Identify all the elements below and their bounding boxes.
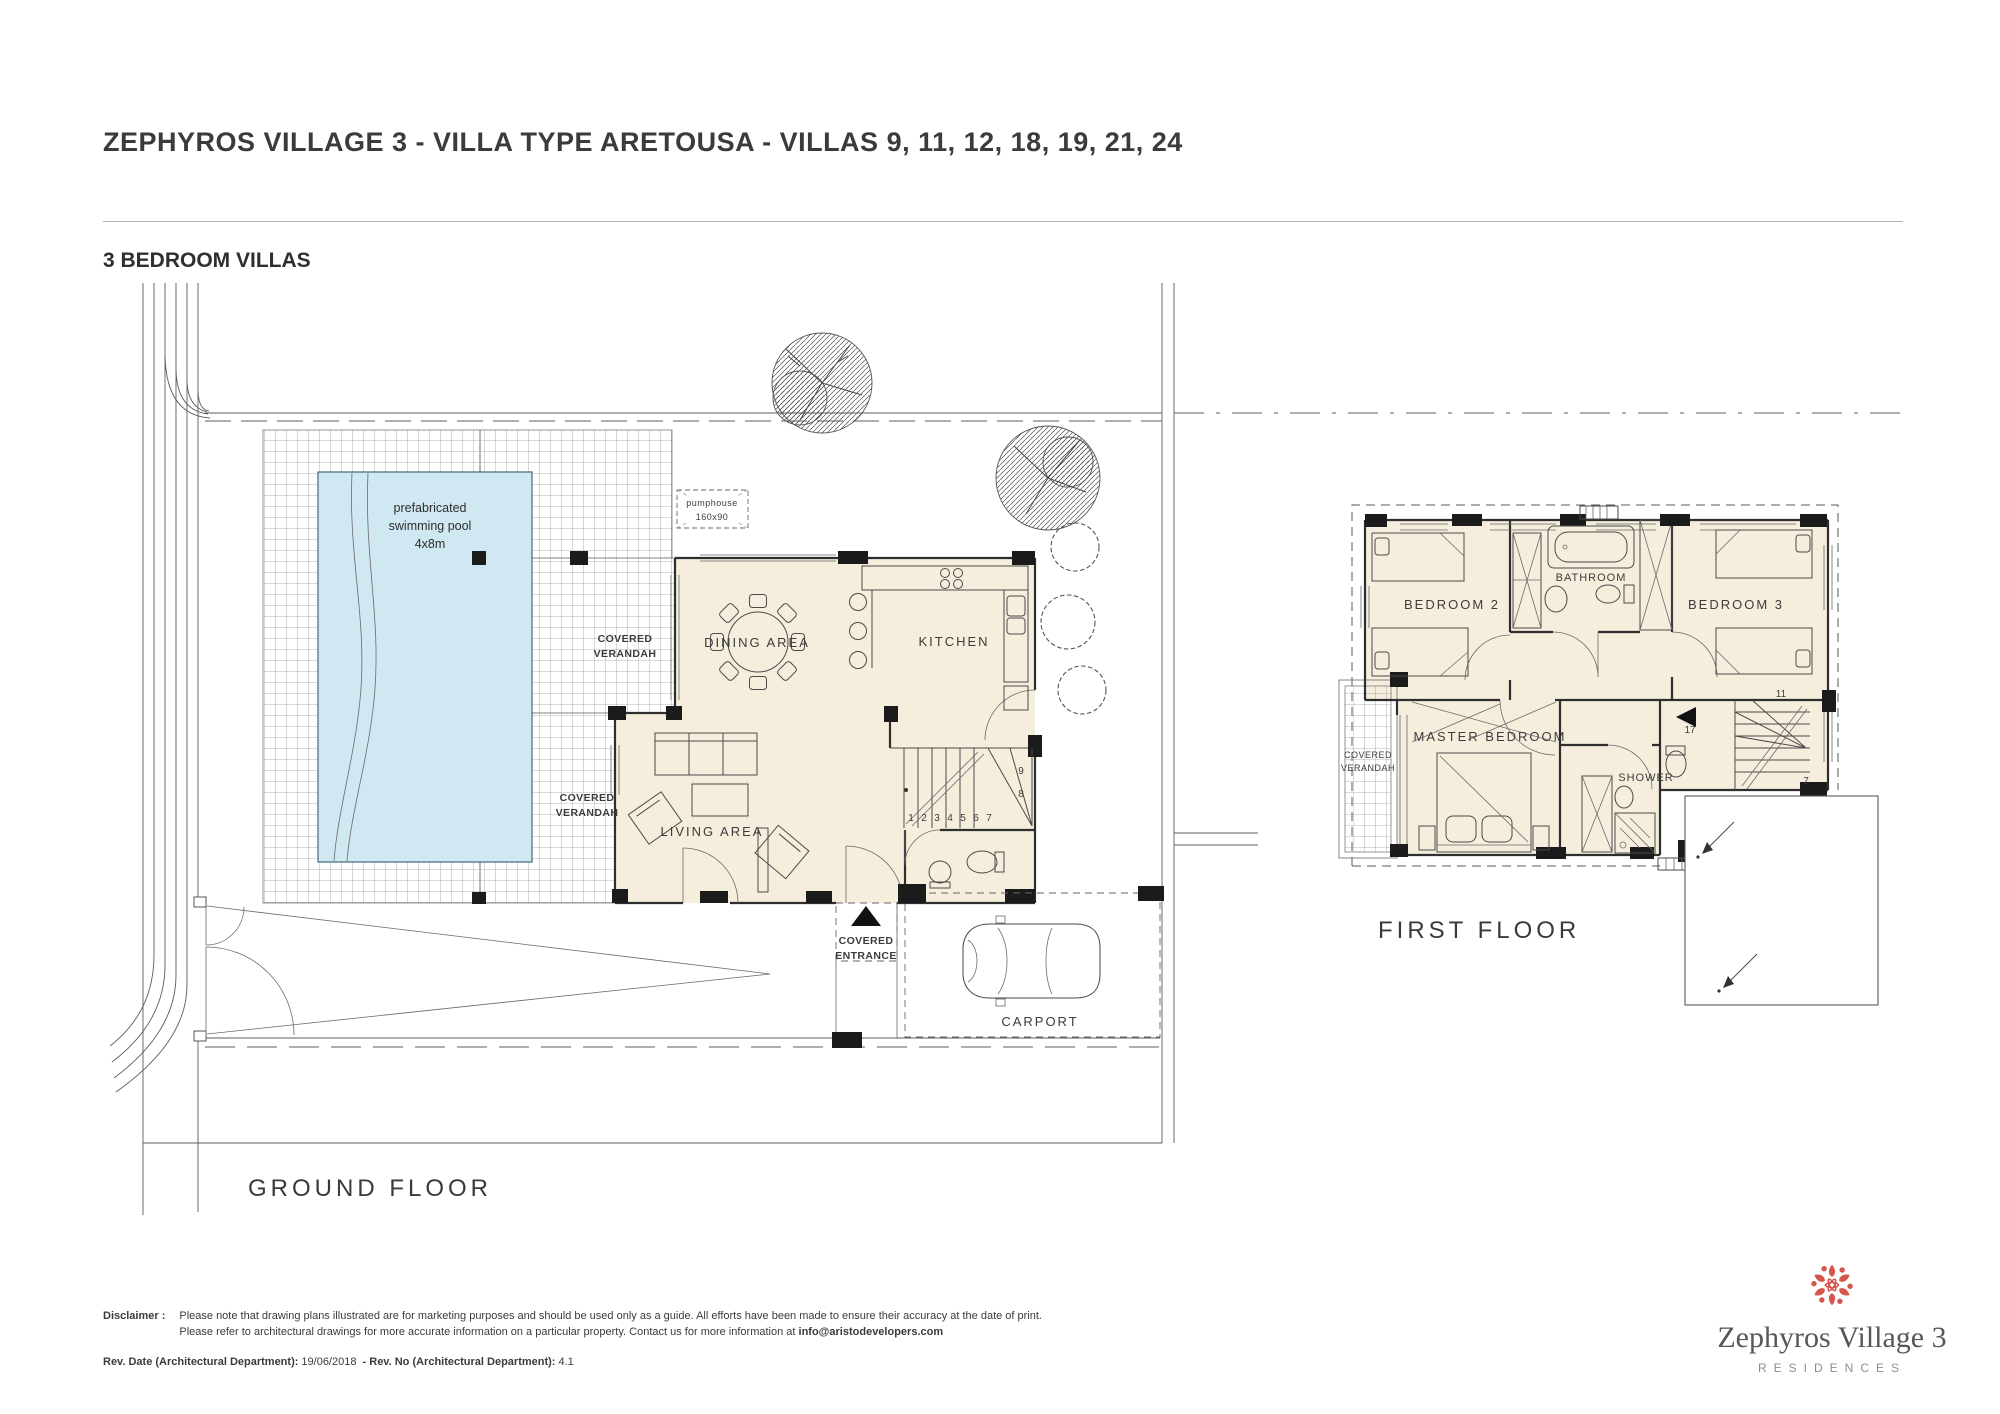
first-floor-title: FIRST FLOOR <box>1378 917 1580 944</box>
revision-line: Rev. Date (Architectural Department):19/… <box>103 1356 577 1368</box>
bedroom3-label: BEDROOM 3 <box>1688 597 1784 612</box>
pumphouse-label-line1: pumphouse <box>686 498 738 508</box>
ground-floor-plan: prefabricated swimming pool 4x8m pumphou… <box>194 333 1164 1202</box>
stair-number: 4 <box>947 813 953 824</box>
living-area-label: LIVING AREA <box>661 824 764 839</box>
verandah-label-line2: VERANDAH <box>594 648 657 660</box>
verandah-label-line1: COVERED <box>1344 750 1392 760</box>
stair-number: 7 <box>986 813 992 824</box>
logo-subtitle: RESIDENCES <box>1672 1361 1992 1375</box>
rev-date-label: Rev. Date (Architectural Department): <box>103 1356 298 1368</box>
bedroom2-label: BEDROOM 2 <box>1404 597 1500 612</box>
swimming-pool: prefabricated swimming pool 4x8m <box>318 472 532 862</box>
verandah-label-line1: COVERED <box>598 633 653 645</box>
rev-date-value: 19/06/2018 <box>301 1356 356 1368</box>
logo-emblem-icon <box>1803 1256 1861 1314</box>
covered-entrance: COVERED ENTRANCE <box>835 903 897 1038</box>
ground-floor-title: GROUND FLOOR <box>248 1175 492 1202</box>
stair-number: 8 <box>1018 789 1024 800</box>
first-floor-plan: COVERED VERANDAH <box>1339 505 1878 1005</box>
verandah-label-line1: COVERED <box>560 792 615 804</box>
company-logo: Zephyros Village 3 RESIDENCES <box>1672 1256 1992 1375</box>
dining-area-label: DINING AREA <box>704 635 810 650</box>
master-bedroom-label: MASTER BEDROOM <box>1414 729 1567 744</box>
rev-no-value: 4.1 <box>558 1356 573 1368</box>
roof-terrace <box>1685 796 1878 1005</box>
logo-name: Zephyros Village 3 <box>1672 1321 1992 1355</box>
car <box>963 916 1100 1006</box>
stair-number: 11 <box>1776 689 1787 700</box>
stair-number: 1 <box>908 813 914 824</box>
pumphouse: pumphouse 160x90 <box>677 490 748 528</box>
stair-number: 6 <box>973 813 979 824</box>
bathroom-label: BATHROOM <box>1556 572 1627 584</box>
pool-label-line1: prefabricated <box>394 501 467 515</box>
carport-label: CARPORT <box>1001 1014 1078 1029</box>
pool-label-line3: 4x8m <box>415 537 446 551</box>
disclaimer-line1: Please note that drawing plans illustrat… <box>179 1310 1042 1322</box>
stair-number: 9 <box>1018 766 1024 777</box>
bush <box>1051 523 1099 571</box>
first-floor-verandah: COVERED VERANDAH <box>1339 680 1397 858</box>
disclaimer-email: info@aristodevelopers.com <box>799 1326 944 1338</box>
entrance-arrow-icon <box>851 906 881 926</box>
stair-number: 2 <box>921 813 927 824</box>
stair-number: 3 <box>934 813 940 824</box>
tree <box>996 426 1100 530</box>
covered-entrance-label-line2: ENTRANCE <box>835 950 897 962</box>
floor-plan-drawing: prefabricated swimming pool 4x8m pumphou… <box>0 0 2000 1414</box>
verandah-label-line2: VERANDAH <box>556 807 619 819</box>
shower-label: SHOWER <box>1618 772 1674 784</box>
house-floor <box>615 558 1035 903</box>
disclaimer-line2: Please refer to architectural drawings f… <box>179 1326 798 1338</box>
pumphouse-label-line2: 160x90 <box>696 512 729 522</box>
covered-entrance-label-line1: COVERED <box>839 935 894 947</box>
driveway-gates <box>194 897 770 1041</box>
tree <box>772 333 872 433</box>
verandah-label-line2: VERANDAH <box>1341 763 1395 773</box>
stair-number: 5 <box>960 813 966 824</box>
kitchen-label: KITCHEN <box>918 634 989 649</box>
disclaimer-label: Disclaimer : <box>103 1308 165 1340</box>
disclaimer: Disclaimer : Please note that drawing pl… <box>103 1308 1603 1340</box>
carport: CARPORT <box>832 886 1164 1048</box>
stair-number: 17 <box>1684 725 1696 736</box>
bush <box>1058 666 1106 714</box>
pool-label-line2: swimming pool <box>389 519 472 533</box>
rev-no-label: - Rev. No (Architectural Department): <box>363 1356 556 1368</box>
bush <box>1041 595 1095 649</box>
stair-number: 7 <box>1803 776 1809 787</box>
